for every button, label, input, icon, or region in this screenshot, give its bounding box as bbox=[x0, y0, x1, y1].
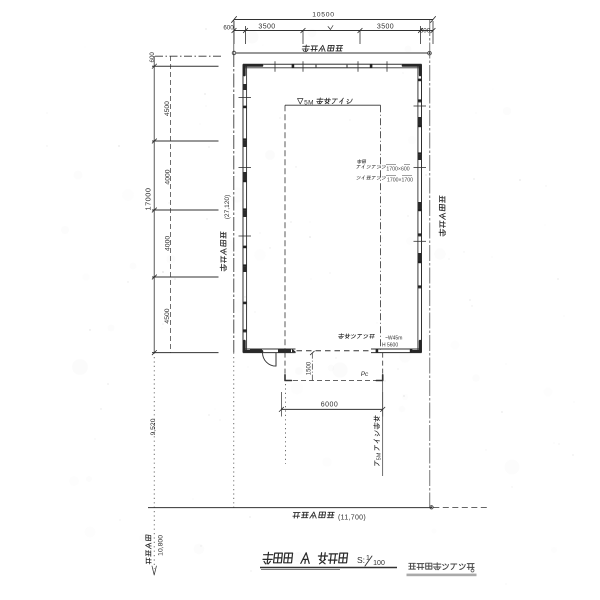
svg-text:~W45m: ~W45m bbox=[385, 336, 402, 342]
svg-text:(27,120): (27,120) bbox=[224, 195, 231, 220]
svg-text:100: 100 bbox=[373, 560, 385, 567]
svg-text:10,800: 10,800 bbox=[158, 535, 165, 556]
svg-text:H 5600: H 5600 bbox=[382, 342, 398, 348]
svg-text:600: 600 bbox=[149, 52, 156, 63]
svg-text:1500: 1500 bbox=[307, 361, 313, 375]
svg-text:3500: 3500 bbox=[377, 24, 394, 31]
svg-text:6000: 6000 bbox=[321, 402, 339, 409]
svg-text:9,520: 9,520 bbox=[150, 418, 157, 435]
svg-text:3500: 3500 bbox=[258, 24, 275, 31]
svg-text:Pc: Pc bbox=[361, 371, 369, 378]
svg-text:4000: 4000 bbox=[164, 236, 171, 251]
svg-text:S:: S: bbox=[357, 555, 365, 565]
svg-text:(11,700): (11,700) bbox=[338, 515, 366, 522]
svg-text:600: 600 bbox=[223, 25, 234, 32]
svg-text:5M: 5M bbox=[376, 452, 382, 460]
svg-text:4500: 4500 bbox=[164, 101, 171, 116]
svg-text:1700×600: 1700×600 bbox=[386, 166, 409, 172]
svg-text:10500: 10500 bbox=[312, 12, 334, 19]
svg-text:4000: 4000 bbox=[164, 169, 171, 184]
svg-text:5M: 5M bbox=[304, 99, 314, 106]
svg-text:17000: 17000 bbox=[144, 187, 153, 210]
svg-text:4500: 4500 bbox=[164, 308, 171, 323]
svg-text:600: 600 bbox=[420, 28, 431, 35]
svg-text:1700×1700: 1700×1700 bbox=[387, 177, 413, 183]
